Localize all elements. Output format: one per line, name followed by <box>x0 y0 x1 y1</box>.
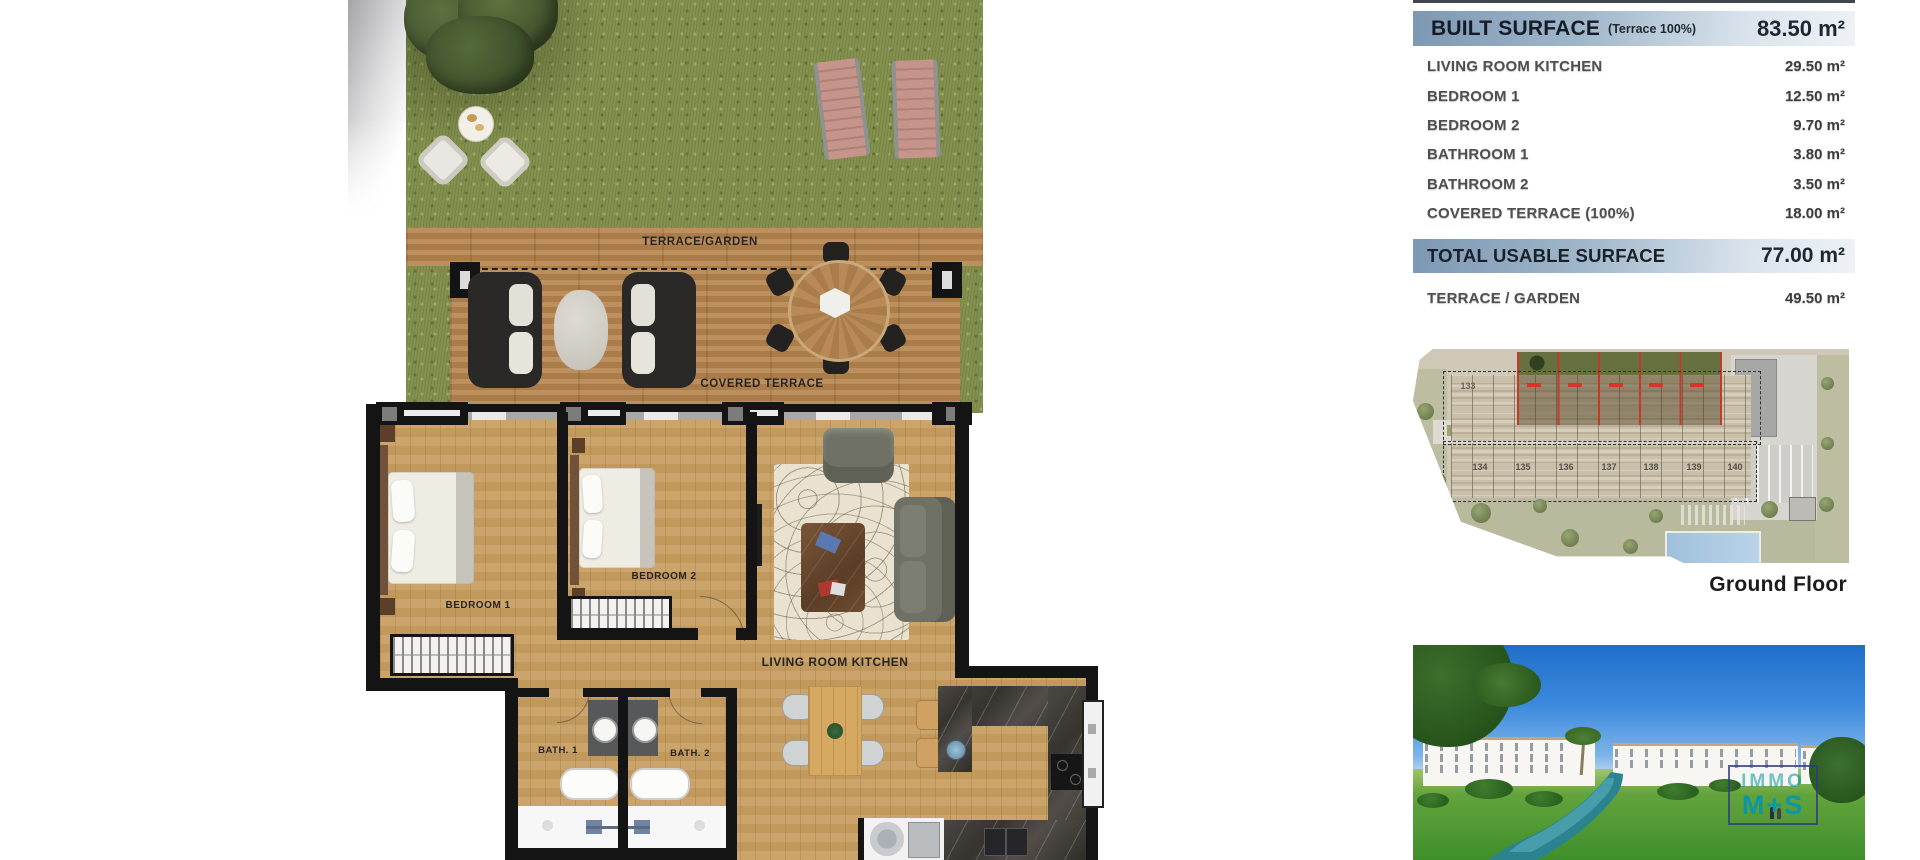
building-floor <box>1425 754 1586 762</box>
siteplan-tree <box>1431 473 1446 488</box>
wall-kitchen-top <box>955 666 1098 678</box>
surface-row: LIVING ROOM KITCHEN29.50 m² <box>1413 52 1855 81</box>
row-label: TERRACE / GARDEN <box>1427 290 1580 307</box>
surface-row: BATHROOM 23.50 m² <box>1413 170 1855 199</box>
coffee-table <box>801 523 865 612</box>
dishwasher <box>908 822 940 858</box>
unit-number: 139 <box>1679 462 1709 472</box>
siteplan-map: 133 134 135 136 137 138 139 140 <box>1413 349 1849 565</box>
row-value: 12.50 m² <box>1785 88 1845 105</box>
bed-throw <box>640 468 655 568</box>
cooktop <box>1051 754 1085 790</box>
surface-row: BATHROOM 13.80 m² <box>1413 140 1855 169</box>
wall-right <box>955 404 969 676</box>
washer <box>870 822 904 856</box>
surface-table: BUILT SURFACE (Terrace 100%) 83.50 m² LI… <box>1413 0 1855 320</box>
outdoor-sofa <box>468 272 542 388</box>
nightstand <box>380 425 395 442</box>
unit-number: 137 <box>1594 462 1624 472</box>
siteplan: 133 134 135 136 137 138 139 140 Ground F… <box>1413 349 1849 604</box>
wardrobe-bedroom1 <box>390 634 514 676</box>
wall-bath-top <box>583 688 618 697</box>
wall-br1-br2 <box>557 412 568 638</box>
siteplan-tree <box>1561 529 1579 547</box>
pillar-window <box>942 271 952 289</box>
bed-throw <box>456 472 474 584</box>
bath2-label: BATH. 2 <box>645 748 735 759</box>
surface-rows: LIVING ROOM KITCHEN29.50 m² BEDROOM 112.… <box>1413 52 1855 228</box>
terrace-garden-label: TERRACE/GARDEN <box>595 236 805 248</box>
sofa-cushion <box>509 284 533 326</box>
siteplan-tree <box>1471 503 1491 523</box>
pillow <box>582 474 604 513</box>
plate <box>475 124 484 131</box>
armchair <box>823 428 894 483</box>
outdoor-sofa <box>622 272 696 388</box>
wall-bath-left <box>505 678 518 860</box>
burner <box>1070 774 1081 785</box>
window-notch <box>1088 768 1096 778</box>
sofa-cushion <box>631 332 655 374</box>
dining-table <box>808 686 862 776</box>
bedroom1-label: BEDROOM 1 <box>413 600 543 611</box>
photo-corner-branch <box>1471 663 1541 707</box>
outdoor-dining-set <box>760 240 915 375</box>
living-room-kitchen-label: LIVING ROOM KITCHEN <box>730 655 940 669</box>
wall-block <box>560 402 626 425</box>
building-floor <box>1615 749 1796 757</box>
landscape-left <box>1413 369 1447 519</box>
garden-side-table <box>458 106 494 142</box>
unit-number: 134 <box>1465 462 1495 472</box>
row-value: 9.70 m² <box>1793 117 1845 134</box>
siteplan-tree <box>1821 377 1834 390</box>
siteplan-tree <box>1761 501 1778 518</box>
pillar <box>382 407 397 421</box>
bush <box>1417 793 1449 808</box>
surface-row: BEDROOM 29.70 m² <box>1413 111 1855 140</box>
fixture <box>694 820 705 831</box>
pillar <box>566 407 581 421</box>
bedroom2-label: BEDROOM 2 <box>599 571 729 582</box>
siteplan-tree <box>1819 497 1834 512</box>
bed1 <box>388 472 474 584</box>
sofa-cushion <box>900 505 926 557</box>
unit-number: 135 <box>1508 462 1538 472</box>
siteplan-tree <box>1649 509 1663 523</box>
burner <box>1057 760 1068 771</box>
kitchen-peninsula <box>938 686 972 772</box>
sink-bath2 <box>632 717 658 743</box>
sofa-cushion <box>509 332 533 374</box>
row-label: BEDROOM 1 <box>1427 88 1520 105</box>
magazine <box>830 582 846 596</box>
sink-divider <box>1005 829 1007 855</box>
unit-number: 136 <box>1551 462 1581 472</box>
plate <box>467 114 477 122</box>
covered-terrace-label: COVERED TERRACE <box>657 378 867 390</box>
sofa-cushion <box>900 561 926 613</box>
surface-row: COVERED TERRACE (100%)18.00 m² <box>1413 199 1855 228</box>
utility-nook <box>858 818 944 860</box>
table-plant <box>827 723 843 739</box>
wall-bottom-cut <box>505 848 737 860</box>
wall-bath-top <box>618 688 670 697</box>
row-label: COVERED TERRACE (100%) <box>1427 205 1635 222</box>
stream <box>1483 770 1703 860</box>
built-surface-note: (Terrace 100%) <box>1608 22 1696 36</box>
row-label: LIVING ROOM KITCHEN <box>1427 58 1602 75</box>
watermark-line2: M+S <box>1742 792 1804 819</box>
total-label: TOTAL USABLE SURFACE <box>1427 245 1665 267</box>
pillar <box>728 407 743 421</box>
wall-br2-bottom <box>557 628 698 640</box>
palm-fronds <box>1565 727 1601 745</box>
siteplan-tree <box>1821 437 1834 450</box>
floorplan: TERRACE/GARDEN COVERED TERRACE BEDROOM 1… <box>0 0 1110 860</box>
row-label: BATHROOM 2 <box>1427 176 1529 193</box>
watermark-line1: IMMO <box>1741 772 1805 792</box>
built-surface-label: BUILT SURFACE <box>1431 17 1600 41</box>
sofa-cushion <box>631 284 655 326</box>
unit-number: 140 <box>1720 462 1750 472</box>
row-label: BEDROOM 2 <box>1427 117 1520 134</box>
pillow <box>391 479 416 522</box>
bath1-label: BATH. 1 <box>513 745 603 756</box>
siteplan-tree <box>1533 499 1547 513</box>
built-surface-value: 83.50 m² <box>1757 16 1845 42</box>
row-value: 18.00 m² <box>1785 205 1845 222</box>
sunbed-rows <box>1681 505 1745 525</box>
garden-tree <box>396 0 571 109</box>
units-outline-top <box>1443 371 1761 445</box>
table-top-line <box>1413 0 1855 3</box>
kitchen-counter-bottom <box>938 820 1088 860</box>
render-photo: IMMO M+S <box>1413 645 1865 860</box>
total-value: 77.00 m² <box>1761 244 1845 268</box>
unit-number: 133 <box>1453 381 1483 391</box>
pillow <box>582 519 604 558</box>
sun-lounger <box>891 59 940 159</box>
window-notch <box>1088 724 1096 734</box>
wall-block <box>376 402 468 425</box>
pool <box>1665 531 1761 565</box>
built-surface-header: BUILT SURFACE (Terrace 100%) 83.50 m² <box>1413 11 1855 46</box>
pool-house <box>1789 497 1816 521</box>
ground-floor-caption: Ground Floor <box>1413 573 1847 597</box>
kitchen-sink-double <box>984 828 1028 856</box>
row-value: 49.50 m² <box>1785 290 1845 307</box>
row-value: 29.50 m² <box>1785 58 1845 75</box>
terrace-garden-row: TERRACE / GARDEN 49.50 m² <box>1413 284 1855 313</box>
book <box>815 531 841 554</box>
tree-blob <box>426 16 534 94</box>
kitchen-window <box>1082 700 1104 808</box>
slider-track <box>386 412 956 420</box>
wall-bath-right <box>726 688 737 860</box>
wall-bath-center <box>618 697 628 860</box>
outside-white <box>380 691 505 860</box>
total-usable-row: TOTAL USABLE SURFACE 77.00 m² <box>1413 239 1855 273</box>
row-value: 3.50 m² <box>1793 176 1845 193</box>
terrace-pillar <box>932 262 962 298</box>
unit-number: 138 <box>1636 462 1666 472</box>
siteplan-tree <box>1623 539 1638 554</box>
bathtub-bath1 <box>560 768 620 800</box>
bed2 <box>579 468 655 568</box>
nightstand <box>380 598 395 615</box>
bathtub-bath2 <box>630 768 690 800</box>
siteplan-tree <box>1417 403 1434 420</box>
row-value: 3.80 m² <box>1793 146 1845 163</box>
fixture <box>542 820 553 831</box>
wall-bath-top <box>505 688 549 697</box>
surface-row: BEDROOM 112.50 m² <box>1413 81 1855 110</box>
tv <box>757 504 762 566</box>
bed2-headboard <box>570 455 579 585</box>
wall-left <box>366 404 380 691</box>
wall-br1-bottom <box>366 678 518 691</box>
window-slit <box>404 410 460 416</box>
sink-bath1 <box>592 717 618 743</box>
pillow <box>391 529 416 572</box>
kitchen-sink-round <box>946 740 966 760</box>
watermark: IMMO M+S <box>1728 765 1818 825</box>
row-label: BATHROOM 1 <box>1427 146 1529 163</box>
sofa <box>894 497 956 622</box>
wall-br2-living <box>746 412 757 640</box>
outdoor-coffee-table <box>554 290 608 370</box>
nightstand <box>572 438 585 453</box>
window-slit <box>588 410 620 416</box>
